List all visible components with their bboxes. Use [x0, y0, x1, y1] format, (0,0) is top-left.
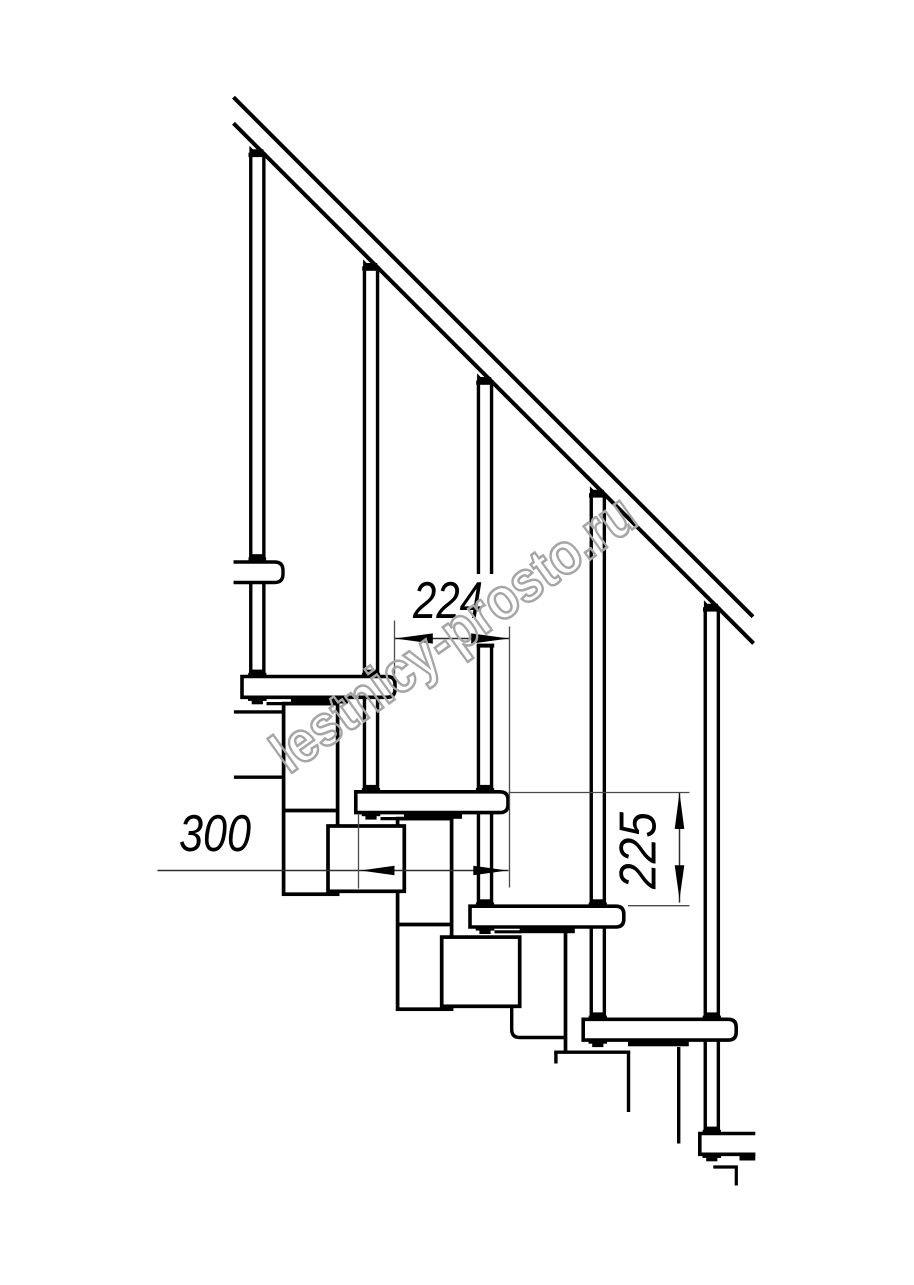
- svg-text:300: 300: [179, 805, 251, 863]
- svg-text:225: 225: [610, 811, 668, 890]
